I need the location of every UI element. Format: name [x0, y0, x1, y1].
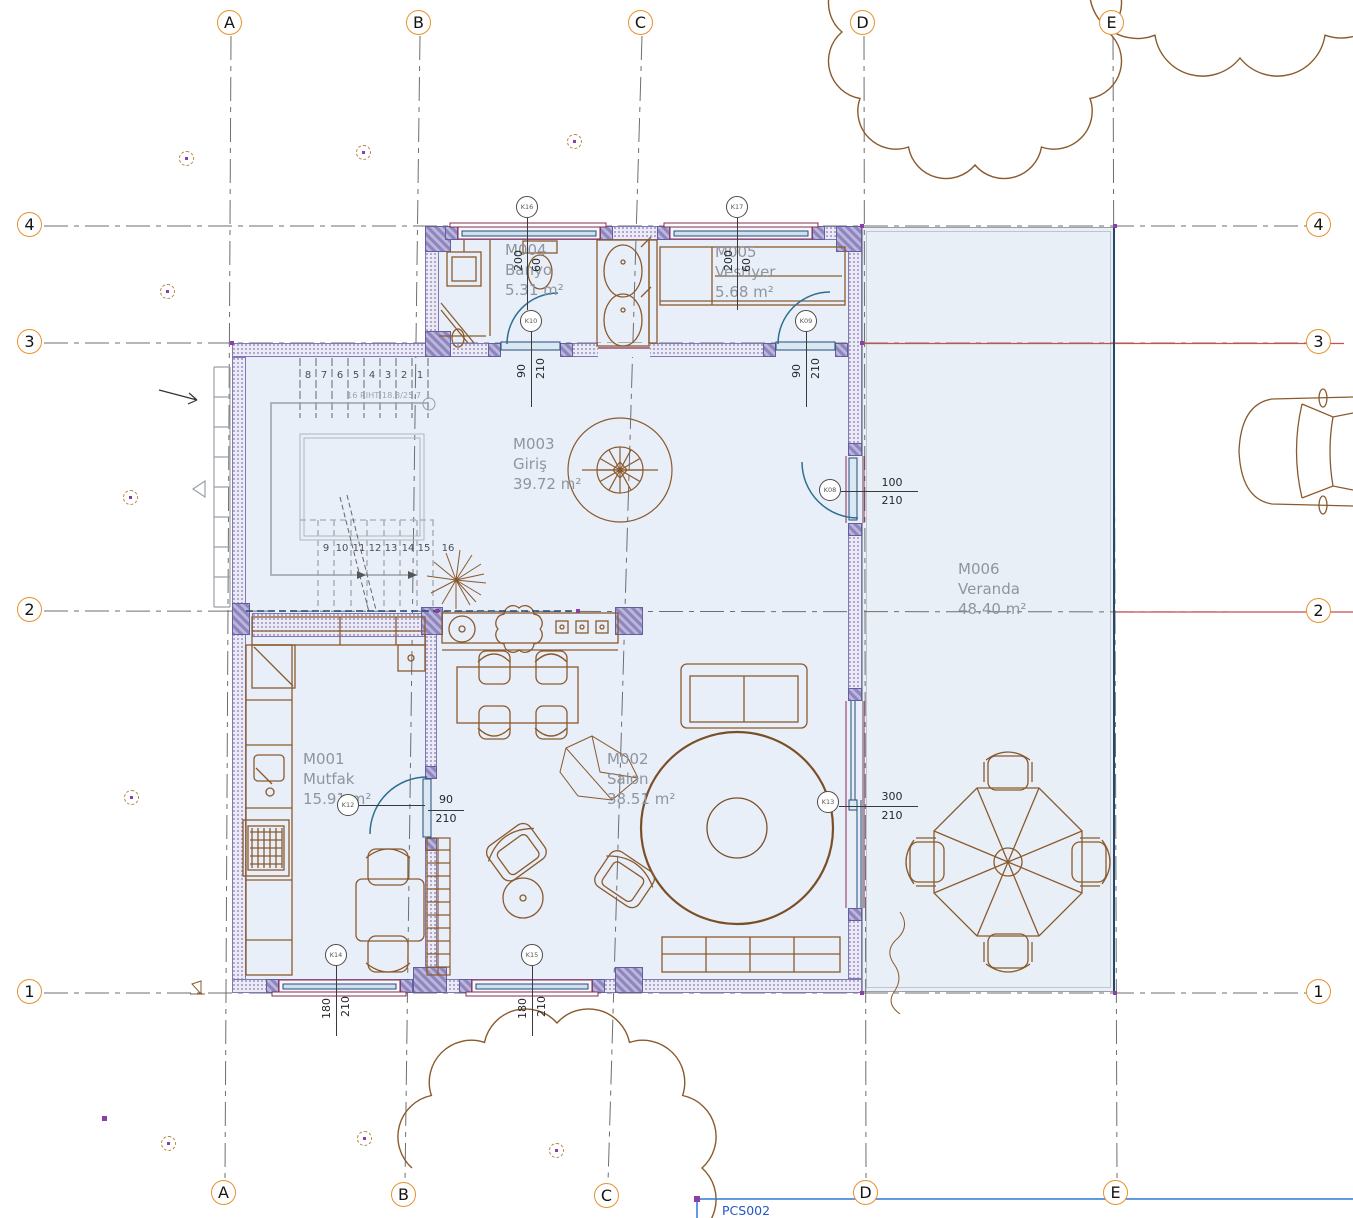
tag-k15[interactable]: K15	[521, 944, 543, 966]
survey-marker	[123, 490, 138, 505]
svg-text:6: 6	[337, 370, 343, 381]
dim-k16-h: 60	[530, 258, 543, 272]
sofa[interactable]	[681, 664, 807, 728]
dim-k15-h: 210	[535, 996, 548, 1017]
svg-text:8: 8	[305, 370, 311, 381]
survey-marker	[567, 134, 582, 149]
floor-plan-canvas: 8 7 6 5 4 3 2 1 9 10 11 12 13 14 15 16 1…	[0, 0, 1353, 1218]
ceiling-light-icon	[568, 418, 672, 522]
tag-k16[interactable]: K16	[516, 196, 538, 218]
dim-k12-h: 210	[424, 812, 468, 825]
grid-bubble-d-top[interactable]: D	[850, 10, 875, 35]
grid-bubble-c-bottom[interactable]: C	[594, 1183, 619, 1208]
grid-bubble-4-left[interactable]: 4	[17, 212, 42, 237]
grid-bubble-4-right[interactable]: 4	[1306, 212, 1331, 237]
tag-k13[interactable]: K13	[817, 791, 839, 813]
fraction-bar	[428, 810, 464, 811]
room-label-m003[interactable]: M003 Giriş 39.72 m²	[513, 435, 581, 494]
tag-k09[interactable]: K09	[795, 310, 817, 332]
grid-bubble-2-left[interactable]: 2	[17, 597, 42, 622]
survey-marker	[161, 1136, 176, 1151]
survey-marker	[124, 790, 139, 805]
car-icon	[1239, 389, 1353, 514]
kitchen-table-set[interactable]	[356, 849, 424, 972]
dim-k16-w: 200	[512, 250, 525, 271]
window-k16[interactable]	[450, 223, 606, 239]
dim-k10-h: 210	[534, 358, 547, 379]
grid-bubble-a-top[interactable]: A	[217, 10, 242, 35]
sink-counter	[597, 237, 657, 348]
staircase: 8 7 6 5 4 3 2 1 9 10 11 12 13 14 15 16 1…	[271, 358, 454, 612]
leader-line	[527, 218, 528, 310]
grid-bubble-1-right[interactable]: 1	[1306, 979, 1331, 1004]
dim-k09-h: 210	[809, 358, 822, 379]
survey-marker	[549, 1143, 564, 1158]
armchair[interactable]	[481, 819, 551, 886]
bookshelf[interactable]	[427, 838, 450, 975]
svg-text:16: 16	[442, 543, 455, 554]
tree-icon	[398, 1009, 716, 1218]
grid-bubble-3-left[interactable]: 3	[17, 329, 42, 354]
tv-unit[interactable]	[662, 937, 840, 972]
svg-text:12: 12	[369, 543, 382, 554]
survey-marker	[179, 151, 194, 166]
grid-bubble-b-bottom[interactable]: B	[391, 1182, 416, 1207]
svg-text:4: 4	[369, 370, 375, 381]
window-k14[interactable]	[272, 980, 406, 996]
dim-k15-w: 180	[516, 998, 529, 1019]
dim-k08-w: 100	[870, 476, 914, 489]
dim-k13-w: 300	[870, 790, 914, 803]
stair-note: 16 RIHT 18.8/25.7	[347, 390, 421, 400]
dim-k10-w: 90	[515, 364, 528, 378]
grid-bubble-e-top[interactable]: E	[1099, 10, 1124, 35]
leader-line	[532, 966, 533, 1036]
survey-marker	[160, 284, 175, 299]
svg-text:9: 9	[323, 543, 329, 554]
survey-marker	[356, 145, 371, 160]
room-label-m002[interactable]: M002 Salon 38.51 m²	[607, 750, 675, 809]
tag-k10[interactable]: K10	[520, 310, 542, 332]
tag-k14[interactable]: K14	[325, 944, 347, 966]
side-table[interactable]	[503, 878, 543, 918]
leader-line	[336, 966, 337, 1036]
dim-k14-h: 210	[339, 996, 352, 1017]
tag-k17[interactable]: K17	[726, 196, 748, 218]
dim-k13-h: 210	[870, 809, 914, 822]
dim-k17-h: 60	[740, 258, 753, 272]
veranda-table-set[interactable]	[890, 752, 1110, 1014]
svg-text:13: 13	[385, 543, 398, 554]
svg-text:11: 11	[353, 543, 366, 554]
svg-text:3: 3	[385, 370, 391, 381]
room-label-m006[interactable]: M006 Veranda 48.40 m²	[958, 560, 1026, 619]
sliding-door-k13[interactable]	[846, 701, 864, 908]
tag-k12[interactable]: K12	[337, 794, 359, 816]
grid-bubble-1-left[interactable]: 1	[17, 979, 42, 1004]
tree-icon	[1052, 0, 1353, 76]
glazed-wall-strip	[193, 367, 230, 607]
dim-k09-w: 90	[790, 364, 803, 378]
grid-bubble-2-right[interactable]: 2	[1306, 598, 1331, 623]
tag-k08[interactable]: K08	[819, 479, 841, 501]
survey-marker	[357, 1131, 372, 1146]
grid-bubble-e-bottom[interactable]: E	[1103, 1180, 1128, 1205]
leader-line	[359, 805, 425, 806]
leader-line	[737, 218, 738, 310]
armchair[interactable]	[590, 846, 660, 912]
dining-set[interactable]	[457, 651, 578, 739]
svg-text:5: 5	[353, 370, 359, 381]
reference-dot	[102, 1116, 107, 1121]
svg-text:14: 14	[402, 543, 415, 554]
dim-k14-w: 180	[320, 998, 333, 1019]
dim-k12-w: 90	[424, 793, 468, 806]
svg-text:15: 15	[418, 543, 431, 554]
grid-bubble-3-right[interactable]: 3	[1306, 329, 1331, 354]
leader-arrow-icon	[159, 390, 197, 404]
leader-line	[841, 491, 918, 492]
plant-icon	[427, 550, 486, 609]
door-k12[interactable]	[370, 777, 431, 837]
leader-line	[839, 806, 918, 807]
console-table	[442, 606, 618, 653]
pipe-label[interactable]: PCS002	[722, 1203, 770, 1218]
svg-text:2: 2	[401, 370, 407, 381]
pipe-line-pcs002[interactable]	[694, 1196, 1353, 1218]
window-k17[interactable]	[664, 223, 818, 239]
svg-text:1: 1	[417, 370, 423, 381]
svg-text:10: 10	[336, 543, 349, 554]
svg-text:7: 7	[321, 370, 327, 381]
leader-line	[806, 331, 807, 407]
grid-bubble-b-top[interactable]: B	[406, 10, 431, 35]
grid-bubble-c-top[interactable]: C	[628, 10, 653, 35]
dim-k08-h: 210	[870, 494, 914, 507]
dim-k17-w: 200	[722, 250, 735, 271]
survey-flag-icon	[190, 981, 205, 994]
grid-bubble-a-bottom[interactable]: A	[211, 1180, 236, 1205]
leader-line	[531, 331, 532, 407]
grid-bubble-d-bottom[interactable]: D	[853, 1180, 878, 1205]
